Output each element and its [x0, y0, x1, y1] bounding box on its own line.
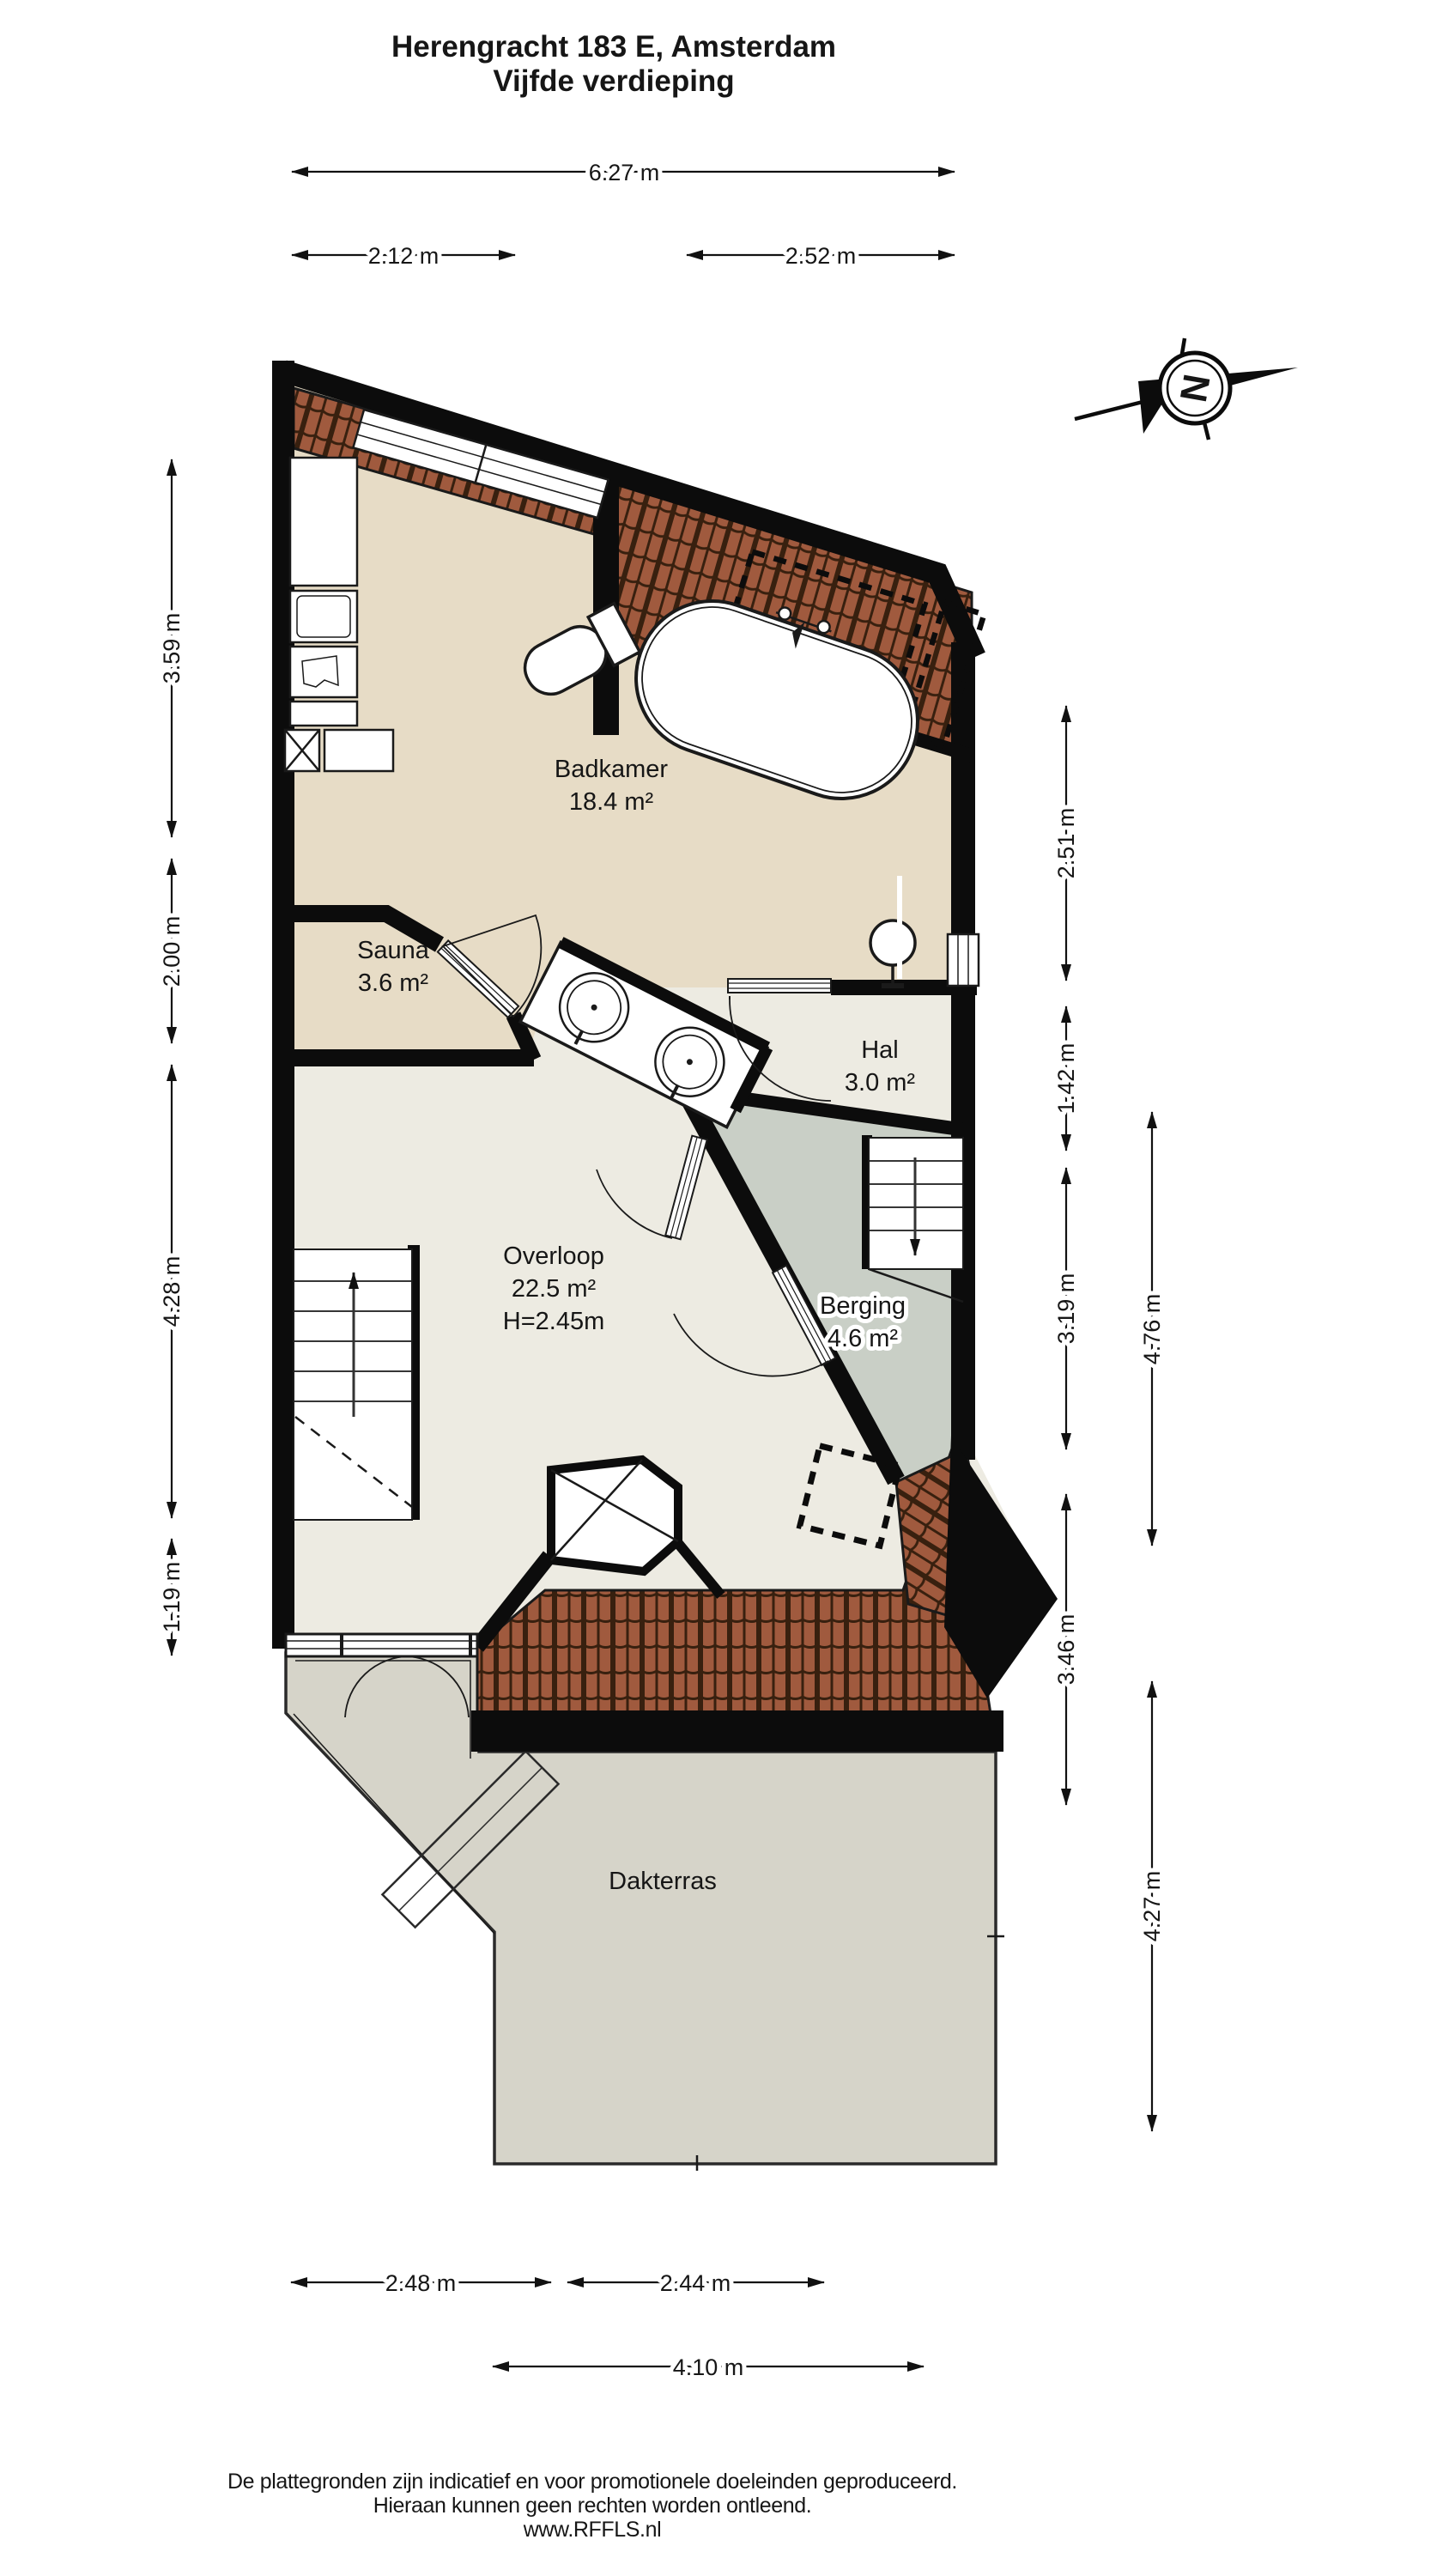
- page-title-line1: Herengracht 183 E, Amsterdam: [391, 30, 836, 64]
- dim-right-outer-1: 4.76 m: [1139, 1294, 1165, 1365]
- window-right-wall: [948, 934, 979, 986]
- room-height-overloop: H=2.45m: [503, 1308, 604, 1335]
- dim-left-4: 1.19 m: [159, 1562, 185, 1633]
- room-label-dakterras: Dakterras: [609, 1868, 717, 1895]
- dim-right-3: 3.19 m: [1053, 1273, 1079, 1345]
- dim-bottom-total: 4.10 m: [673, 2354, 744, 2380]
- glass-partition: [728, 979, 831, 993]
- dim-bottom-right: 2.44 m: [660, 2270, 731, 2296]
- dim-left-3: 4.28 m: [159, 1256, 185, 1327]
- footer-website: www.RFFLS.nl: [523, 2518, 662, 2542]
- room-area-overloop: 22.5 m²: [512, 1275, 597, 1303]
- washer: [290, 591, 357, 642]
- compass: N: [1075, 338, 1298, 440]
- dim-top-left: 2.12 m: [368, 243, 440, 269]
- page-title-line2: Vijfde verdieping: [493, 64, 734, 98]
- footer-disclaimer-line2: Hieraan kunnen geen rechten worden ontle…: [373, 2494, 812, 2518]
- dim-right-1: 2.51 m: [1053, 808, 1079, 879]
- room-area-badkamer: 18.4 m²: [569, 788, 654, 816]
- stairs-overloop: [294, 1249, 412, 1520]
- room-area-sauna: 3.6 m²: [358, 969, 429, 997]
- dim-right-outer-2: 4.27 m: [1139, 1871, 1165, 1942]
- footer: De plattegronden zijn indicatief en voor…: [227, 2470, 957, 2542]
- dim-left-2: 2.00 m: [159, 916, 185, 987]
- dim-bottom-left: 2.48 m: [385, 2270, 457, 2296]
- room-area-hal: 3.0 m²: [845, 1069, 916, 1097]
- room-label-berging: Berging: [820, 1292, 906, 1320]
- floorplan-page: N Herengracht 183 E, Amsterdam Vijfde ve…: [0, 0, 1449, 2576]
- room-label-badkamer: Badkamer: [555, 756, 669, 783]
- dim-top-right: 2.52 m: [785, 243, 857, 269]
- room-label-sauna: Sauna: [357, 937, 430, 964]
- footer-disclaimer-line1: De plattegronden zijn indicatief en voor…: [227, 2470, 957, 2494]
- dim-left-1: 3.59 m: [159, 613, 185, 684]
- room-label-overloop: Overloop: [503, 1242, 604, 1270]
- room-area-berging: 4.6 m²: [828, 1325, 899, 1352]
- skylight-shaft: [551, 1460, 678, 1571]
- cabinet: [290, 647, 357, 697]
- shelf: [290, 702, 357, 726]
- wall-eave-band: [471, 1710, 1003, 1752]
- cupboard: [324, 730, 393, 771]
- dim-right-4: 3.46 m: [1053, 1614, 1079, 1686]
- room-label-hal: Hal: [861, 1036, 899, 1064]
- floor-plan-svg: N Herengracht 183 E, Amsterdam Vijfde ve…: [0, 0, 1449, 2576]
- dim-top-total: 6.27 m: [589, 160, 660, 185]
- wardrobe: [290, 458, 357, 586]
- dim-right-2: 1.42 m: [1053, 1043, 1079, 1115]
